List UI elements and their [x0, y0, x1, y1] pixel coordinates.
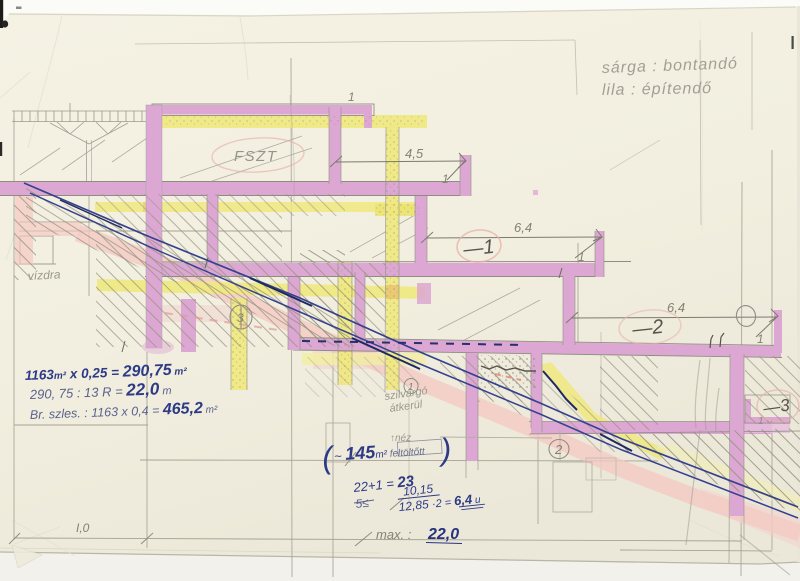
svg-text:—1: —1 — [461, 236, 495, 261]
svg-text:1 ··: 1 ·· — [758, 416, 773, 427]
svg-text:I,0: I,0 — [76, 521, 90, 535]
svg-text:5≤: 5≤ — [355, 496, 370, 511]
svg-text:1: 1 — [442, 172, 449, 186]
svg-text:6,4: 6,4 — [667, 300, 685, 315]
svg-text:1: 1 — [348, 90, 355, 104]
svg-text:lila : építendő: lila : építendő — [602, 80, 713, 99]
svg-text:FSZT: FSZT — [234, 148, 278, 165]
svg-text:—2: —2 — [630, 316, 664, 341]
svg-text:4,5: 4,5 — [405, 146, 424, 161]
svg-text:6,4: 6,4 — [514, 220, 532, 235]
svg-text:2: 2 — [554, 442, 563, 457]
svg-text:1: 1 — [578, 250, 585, 264]
svg-text:1: 1 — [757, 332, 764, 346]
svg-text:vízdra: vízdra — [27, 267, 61, 283]
svg-text:max. :: max. : — [376, 527, 412, 542]
svg-text:—3: —3 — [761, 395, 791, 418]
svg-text:22,0: 22,0 — [427, 526, 459, 543]
svg-text:3: 3 — [237, 311, 244, 325]
